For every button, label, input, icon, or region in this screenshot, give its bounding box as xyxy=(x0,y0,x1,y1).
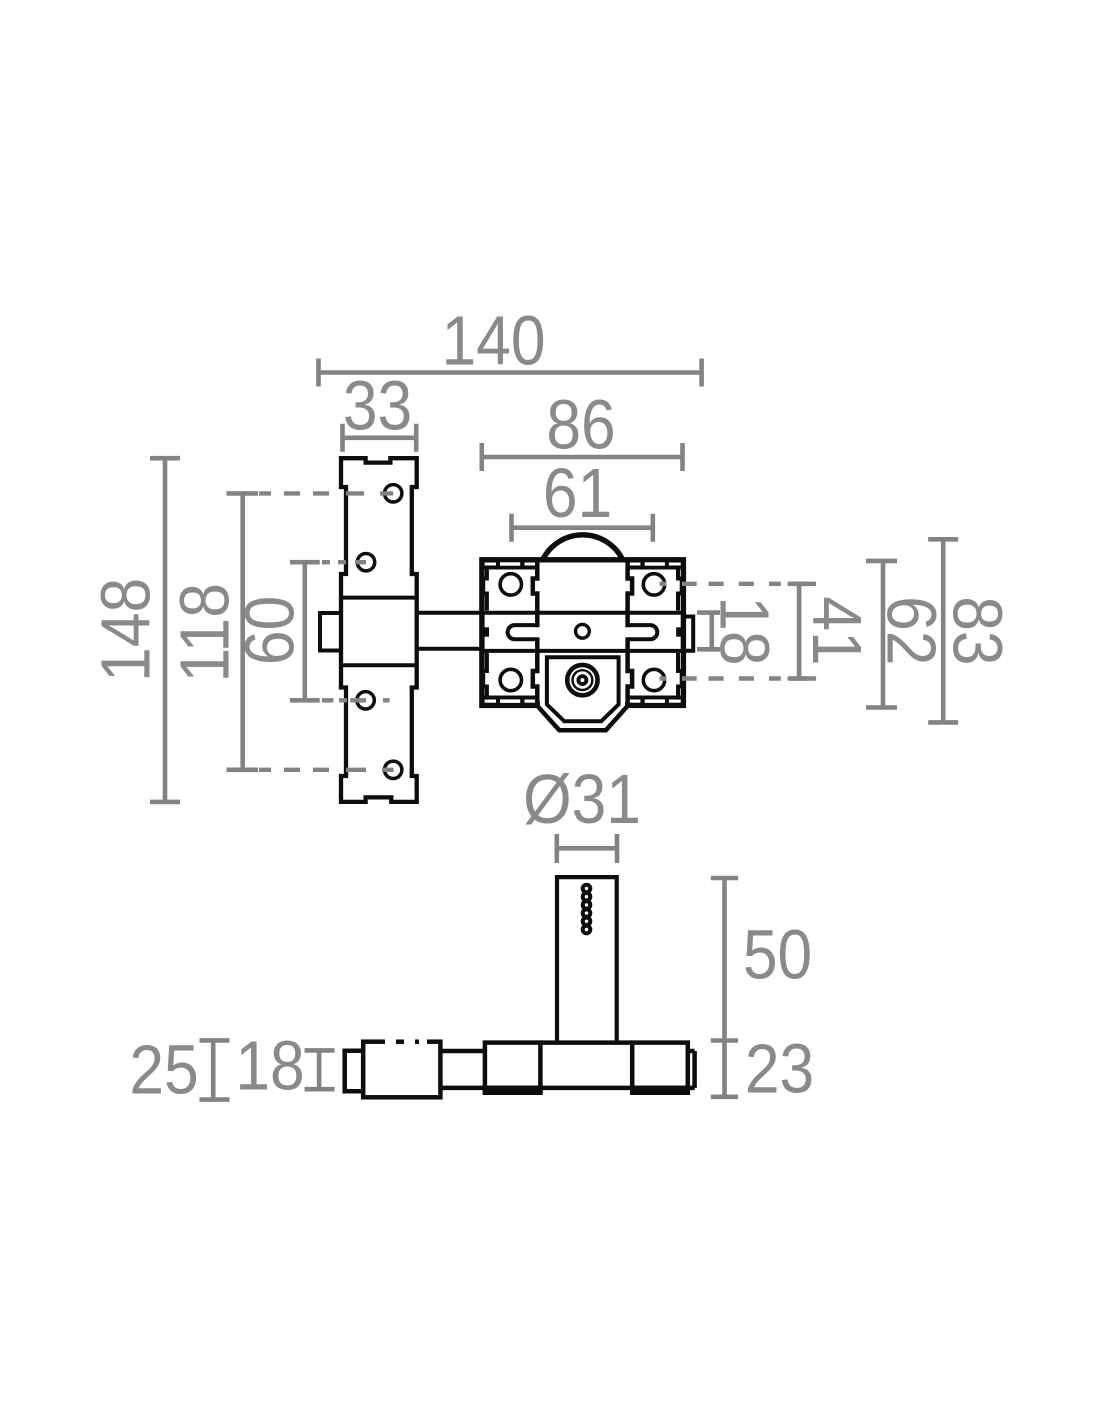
svg-text:Ø31: Ø31 xyxy=(523,760,641,838)
svg-text:61: 61 xyxy=(543,454,612,532)
svg-text:148: 148 xyxy=(86,578,164,682)
svg-text:50: 50 xyxy=(743,915,812,993)
svg-text:25: 25 xyxy=(129,1030,198,1108)
svg-text:83: 83 xyxy=(939,596,1017,665)
svg-text:140: 140 xyxy=(441,301,545,379)
svg-text:60: 60 xyxy=(230,596,308,665)
svg-text:62: 62 xyxy=(873,596,951,665)
svg-text:41: 41 xyxy=(798,596,876,665)
svg-text:86: 86 xyxy=(546,385,615,463)
svg-text:23: 23 xyxy=(745,1029,814,1107)
svg-text:33: 33 xyxy=(343,366,412,444)
svg-text:18: 18 xyxy=(235,1026,304,1104)
svg-text:18: 18 xyxy=(706,596,784,665)
